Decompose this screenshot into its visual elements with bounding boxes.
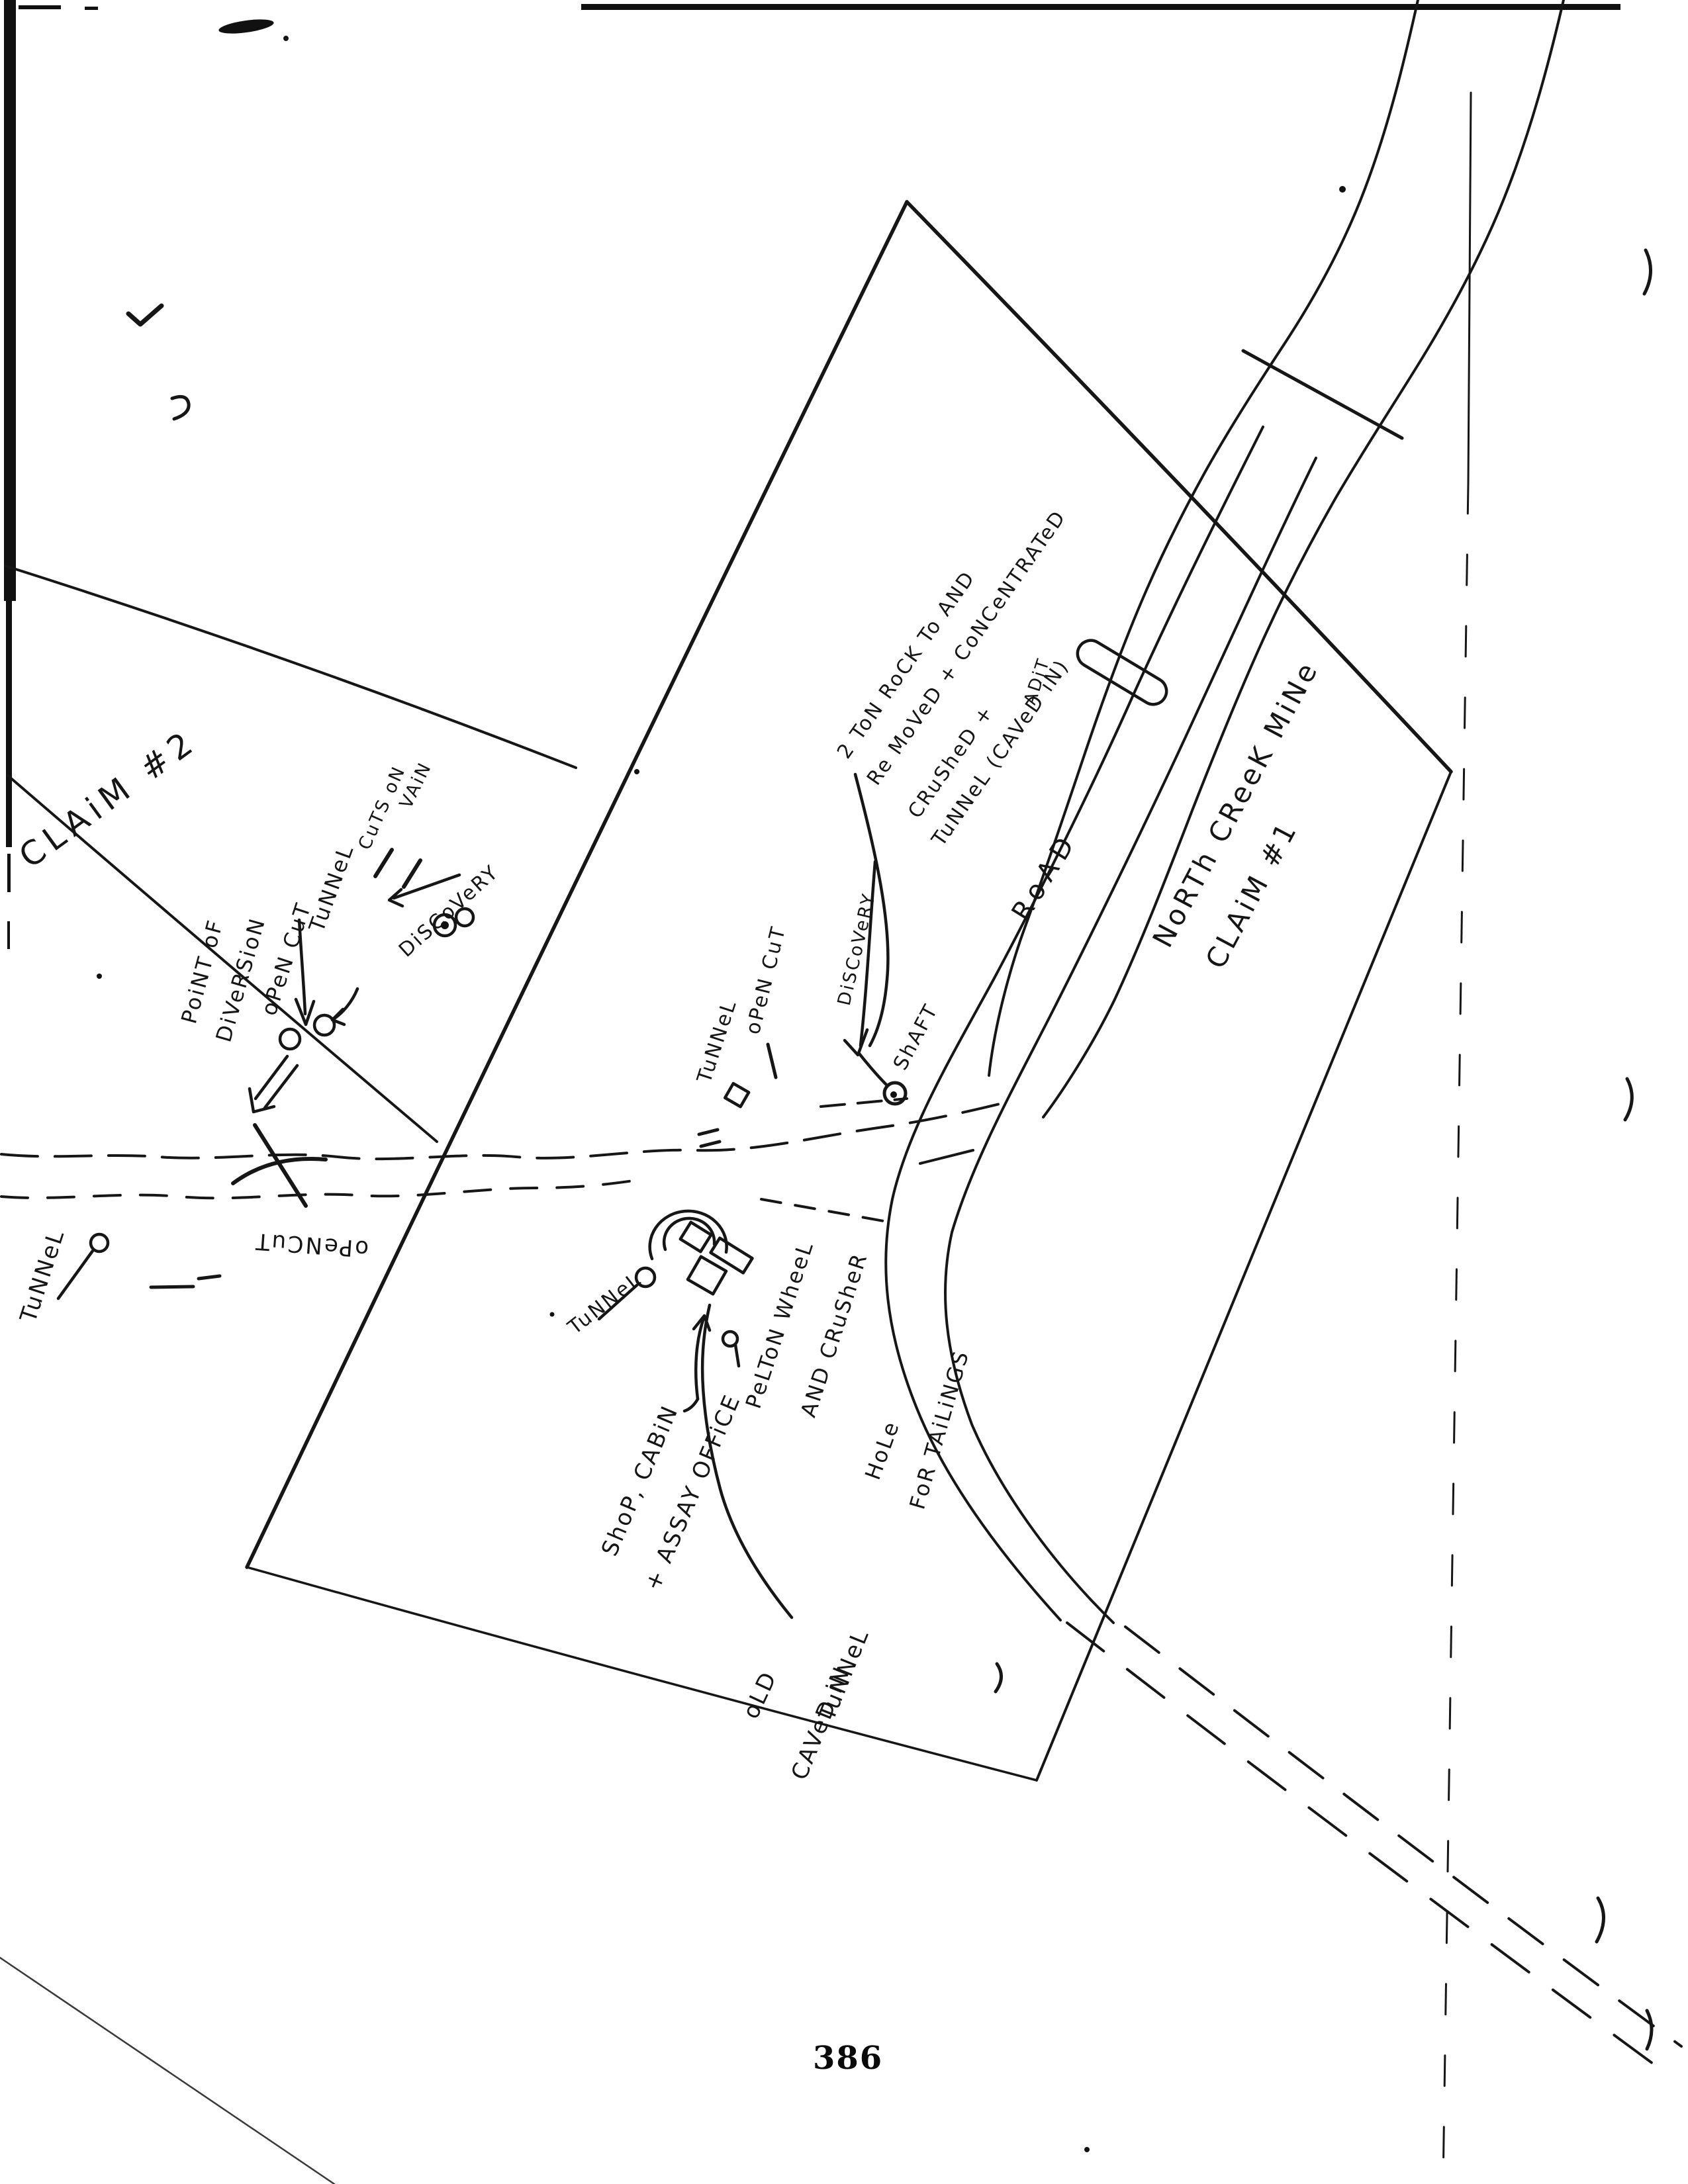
page-number: 386	[813, 2040, 883, 2077]
creek-x-mark	[233, 1125, 326, 1206]
building-icon	[711, 1238, 753, 1273]
open-cut-circle-icon	[314, 1015, 334, 1035]
tunnel-square-icon	[725, 1083, 749, 1107]
creek-dashed-west	[1, 1099, 1000, 1221]
creek-lines	[989, 0, 1564, 1117]
road-lines	[886, 427, 1681, 2075]
arrows-and-leaders	[58, 635, 1172, 1617]
open-cut-circle-icon	[280, 1029, 300, 1049]
arrowhead-icon	[845, 1030, 867, 1055]
building-icon	[688, 1257, 726, 1295]
tunnel-portal-icon	[91, 1234, 108, 1251]
open-cut-tick	[768, 1044, 776, 1077]
vein-cut-tick	[404, 860, 420, 887]
hand-drawn-map-drawing	[0, 0, 1688, 2184]
stray-pen-marks	[0, 186, 1652, 2184]
scanned-document-page: CLAiM #2 PoiNT oF DiVeRSioN oPeN CuT TuN…	[0, 0, 1688, 2184]
vein-cut-tick	[375, 850, 392, 876]
page-fold-line	[1443, 93, 1471, 2184]
scan-edge-artifacts	[4, 0, 1620, 949]
